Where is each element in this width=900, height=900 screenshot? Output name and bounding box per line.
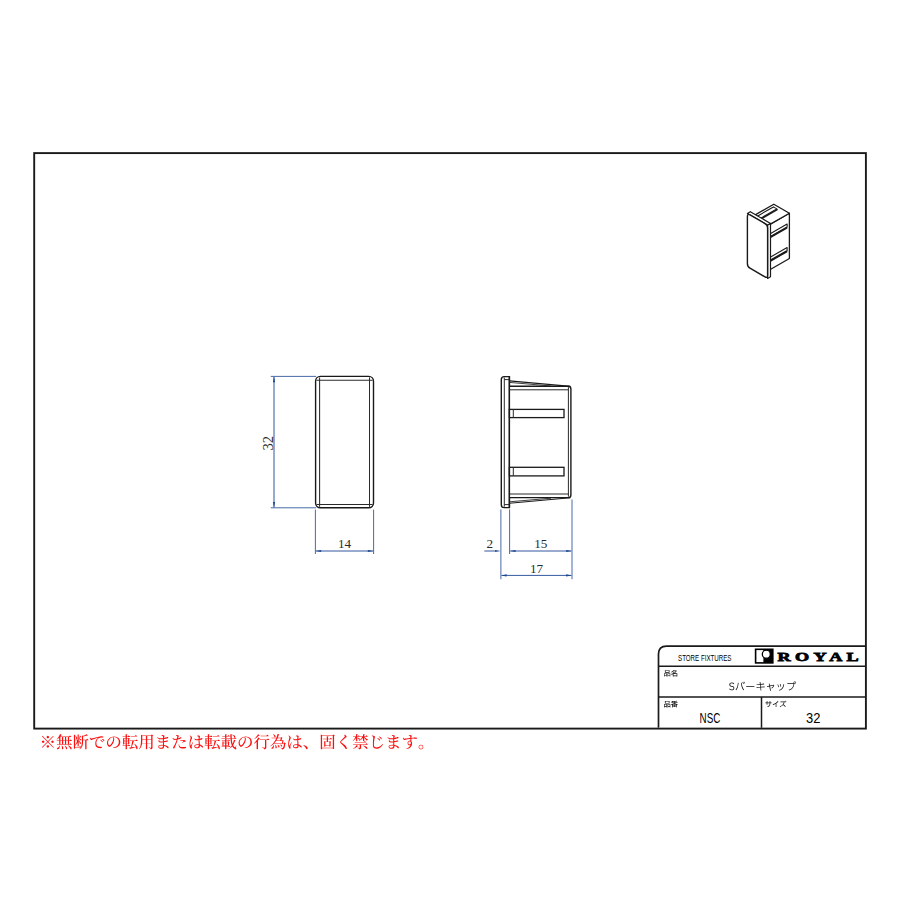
svg-text:2: 2 — [487, 536, 494, 551]
svg-text:ROYAL: ROYAL — [778, 650, 863, 664]
svg-text:14: 14 — [338, 536, 352, 551]
svg-text:17: 17 — [530, 561, 544, 576]
svg-text:STORE FIXTURES: STORE FIXTURES — [678, 653, 732, 663]
svg-text:32: 32 — [806, 710, 820, 726]
svg-text:NSC: NSC — [700, 710, 721, 726]
svg-text:15: 15 — [534, 536, 548, 551]
svg-text:32: 32 — [260, 436, 276, 451]
